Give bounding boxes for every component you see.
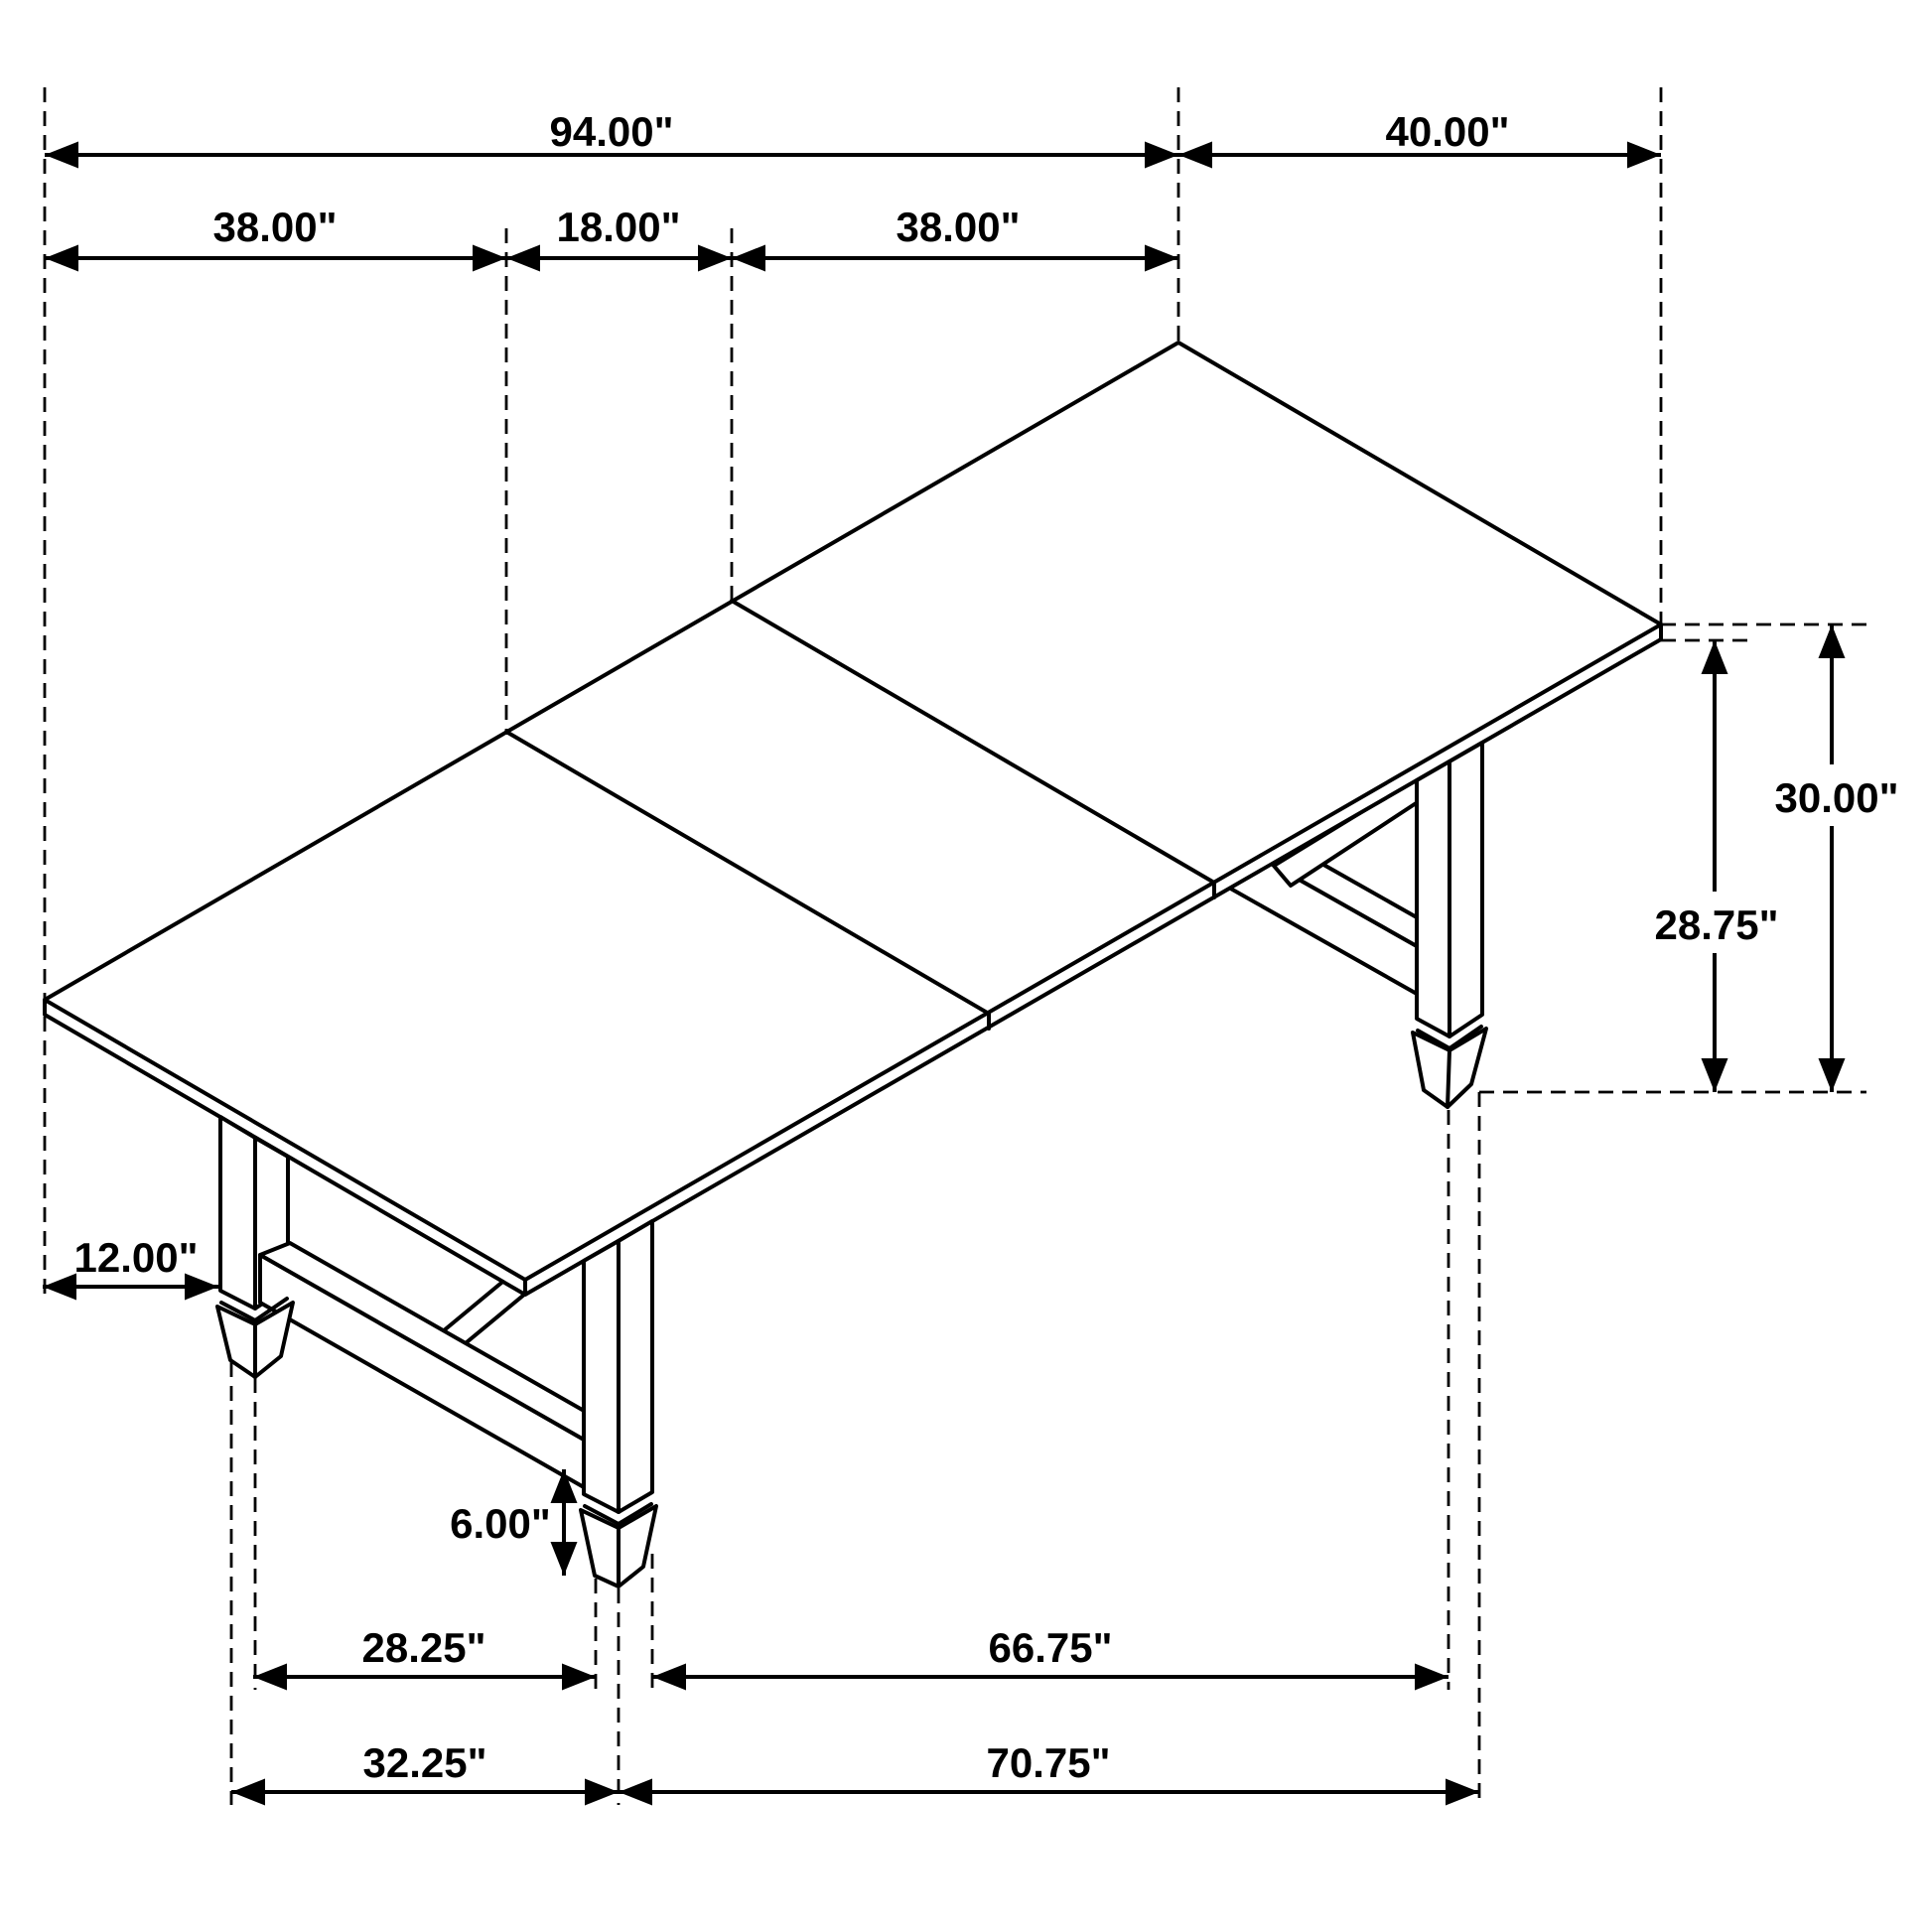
dim-label-center-leaf: 18.00" bbox=[556, 204, 680, 250]
dim-label-leg-gap-width-inner: 28.25" bbox=[361, 1624, 485, 1671]
dim-label-leg-gap-width-outer: 32.25" bbox=[362, 1739, 486, 1786]
diagram-page: 94.00" 40.00" 38.00" 18.00" 38.00" 30.00… bbox=[0, 0, 1932, 1932]
dim-label-leg-gap-length-outer: 70.75" bbox=[986, 1739, 1110, 1786]
dim-label-end-section-left: 38.00" bbox=[212, 204, 337, 250]
dim-label-end-section-right: 38.00" bbox=[896, 204, 1020, 250]
dim-label-height-overall: 30.00" bbox=[1774, 774, 1898, 821]
dim-label-overall-length: 94.00" bbox=[549, 108, 673, 155]
dim-label-leg-gap-length-inner: 66.75" bbox=[988, 1624, 1112, 1671]
table-dimension-diagram: 94.00" 40.00" 38.00" 18.00" 38.00" 30.00… bbox=[0, 0, 1932, 1932]
right-foot-corner-edge bbox=[1448, 1050, 1449, 1107]
dim-label-stretcher-clearance: 6.00" bbox=[450, 1500, 551, 1547]
dim-label-height-underside: 28.75" bbox=[1654, 901, 1778, 948]
dim-label-leg-inset: 12.00" bbox=[73, 1234, 198, 1281]
dim-label-overall-width: 40.00" bbox=[1385, 108, 1509, 155]
